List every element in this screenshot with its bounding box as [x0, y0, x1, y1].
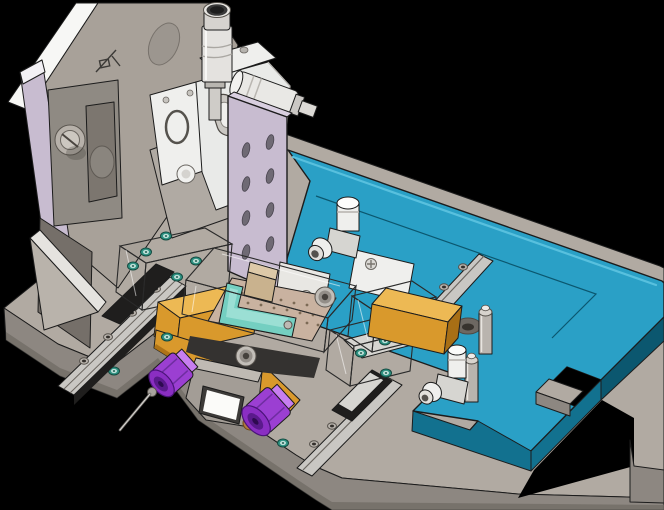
philips-screw — [366, 259, 377, 270]
cad-render — [0, 0, 664, 510]
polished-screw — [315, 287, 335, 307]
cad-viewport[interactable] — [0, 0, 664, 510]
clamp-block — [48, 80, 122, 226]
pivot-cylinder — [90, 146, 114, 178]
standoff-front — [465, 353, 478, 402]
standoff-rear — [479, 305, 492, 354]
micrometer-spindle — [209, 86, 221, 120]
polished-screw — [236, 346, 256, 366]
